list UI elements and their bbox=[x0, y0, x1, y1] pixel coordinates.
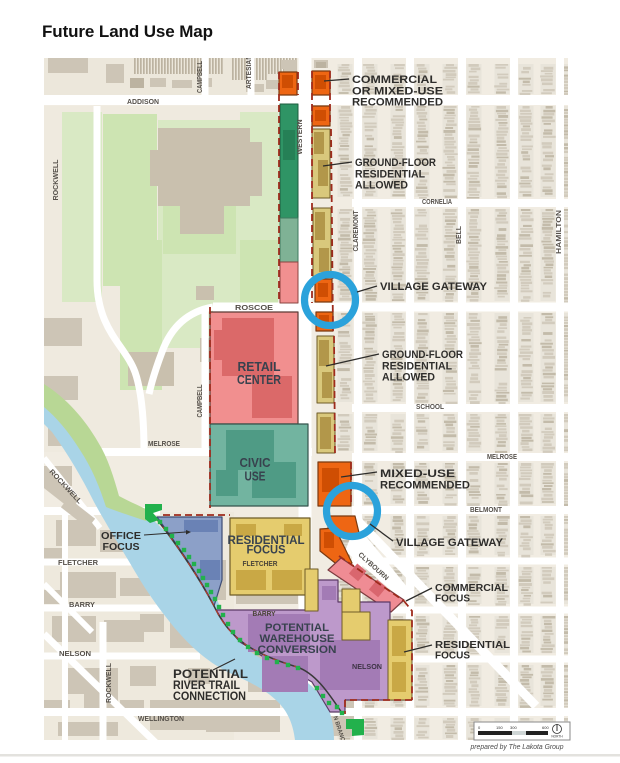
svg-text:MELROSE: MELROSE bbox=[487, 454, 517, 461]
svg-text:OR MIXED-USE: OR MIXED-USE bbox=[352, 85, 443, 97]
svg-text:ROCKWELL: ROCKWELL bbox=[106, 662, 113, 703]
svg-text:prepared by The Lakota Group: prepared by The Lakota Group bbox=[470, 744, 564, 751]
svg-text:WELLINGTON: WELLINGTON bbox=[138, 716, 184, 723]
svg-text:150: 150 bbox=[496, 725, 503, 730]
svg-text:ROSCOE: ROSCOE bbox=[235, 305, 273, 312]
svg-text:300: 300 bbox=[510, 725, 517, 730]
svg-text:Future Land Use Map: Future Land Use Map bbox=[42, 22, 213, 41]
svg-text:HAMILTON: HAMILTON bbox=[556, 210, 563, 254]
svg-text:NELSON: NELSON bbox=[352, 664, 382, 671]
svg-text:RETAIL: RETAIL bbox=[238, 360, 281, 374]
svg-text:NELSON: NELSON bbox=[59, 651, 91, 658]
svg-text:COMMERCIAL: COMMERCIAL bbox=[352, 74, 437, 86]
svg-text:BELL: BELL bbox=[456, 225, 463, 244]
svg-text:600: 600 bbox=[542, 725, 549, 730]
svg-text:CAMPBELL: CAMPBELL bbox=[197, 384, 204, 418]
svg-text:CAMPBELL: CAMPBELL bbox=[197, 60, 204, 93]
svg-text:GROUND-FLOOR: GROUND-FLOOR bbox=[382, 349, 463, 361]
svg-text:RECOMMENDED: RECOMMENDED bbox=[380, 479, 470, 491]
svg-text:ROCKWELL: ROCKWELL bbox=[53, 159, 60, 201]
svg-text:CONVERSION: CONVERSION bbox=[258, 644, 337, 656]
svg-text:CLAREMONT: CLAREMONT bbox=[353, 210, 360, 252]
svg-text:FLETCHER: FLETCHER bbox=[243, 561, 278, 568]
svg-text:FOCUS: FOCUS bbox=[247, 545, 286, 557]
svg-text:CORNELIA: CORNELIA bbox=[422, 199, 452, 206]
svg-text:RESIDENTIAL: RESIDENTIAL bbox=[355, 168, 425, 180]
svg-text:ALLOWED: ALLOWED bbox=[382, 372, 435, 384]
svg-text:BELMONT: BELMONT bbox=[470, 507, 503, 514]
svg-text:ARTESIAN: ARTESIAN bbox=[246, 55, 253, 89]
svg-text:SCHOOL: SCHOOL bbox=[416, 404, 445, 411]
svg-text:CIVIC: CIVIC bbox=[240, 456, 271, 470]
svg-text:FOCUS: FOCUS bbox=[103, 541, 140, 553]
svg-text:BARRY: BARRY bbox=[253, 611, 276, 618]
svg-text:FLETCHER: FLETCHER bbox=[58, 560, 98, 567]
svg-text:ADDISON: ADDISON bbox=[127, 99, 159, 106]
svg-text:FOCUS: FOCUS bbox=[435, 593, 470, 605]
svg-text:RECOMMENDED: RECOMMENDED bbox=[352, 97, 443, 109]
svg-text:WESTERN: WESTERN bbox=[297, 120, 304, 155]
svg-text:VILLAGE GATEWAY: VILLAGE GATEWAY bbox=[380, 281, 488, 293]
svg-text:ALLOWED: ALLOWED bbox=[355, 180, 408, 192]
svg-text:MELROSE: MELROSE bbox=[148, 441, 180, 448]
svg-text:NORTH: NORTH bbox=[551, 735, 563, 739]
svg-text:MIXED-USE: MIXED-USE bbox=[380, 468, 455, 480]
svg-text:VILLAGE GATEWAY: VILLAGE GATEWAY bbox=[396, 537, 504, 549]
svg-text:GROUND-FLOOR: GROUND-FLOOR bbox=[355, 157, 436, 169]
svg-text:USE: USE bbox=[245, 470, 266, 484]
svg-text:CONNECTION: CONNECTION bbox=[173, 691, 246, 703]
svg-text:FOCUS: FOCUS bbox=[435, 650, 470, 662]
svg-text:RESIDENTIAL: RESIDENTIAL bbox=[382, 360, 452, 372]
svg-text:CENTER: CENTER bbox=[237, 373, 281, 387]
svg-text:BARRY: BARRY bbox=[69, 602, 95, 609]
